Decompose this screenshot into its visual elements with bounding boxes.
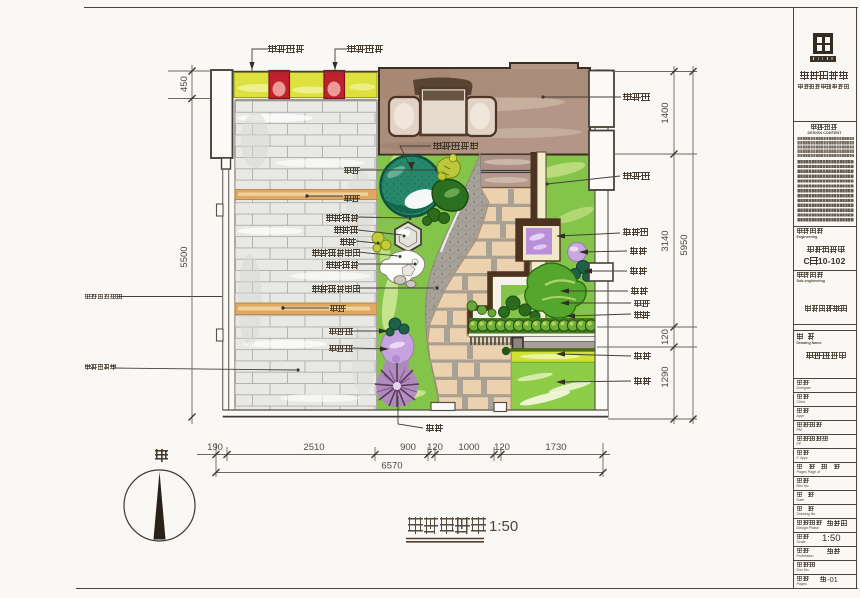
- svg-text:1000: 1000: [458, 442, 479, 453]
- svg-text:5950: 5950: [679, 234, 690, 255]
- svg-text:1:50: 1:50: [489, 518, 518, 535]
- svg-text:900: 900: [400, 442, 416, 453]
- svg-text:120: 120: [660, 329, 671, 345]
- svg-text:3140: 3140: [660, 230, 671, 251]
- svg-text:450: 450: [179, 76, 190, 92]
- svg-text:6570: 6570: [381, 461, 402, 472]
- svg-text:190: 190: [207, 442, 223, 453]
- svg-text:5500: 5500: [179, 246, 190, 267]
- svg-text:1400: 1400: [660, 102, 671, 123]
- svg-text:120: 120: [494, 442, 510, 453]
- svg-text:120: 120: [427, 442, 443, 453]
- svg-text:1290: 1290: [660, 366, 671, 387]
- svg-text:2510: 2510: [303, 442, 324, 453]
- svg-text:1730: 1730: [545, 442, 566, 453]
